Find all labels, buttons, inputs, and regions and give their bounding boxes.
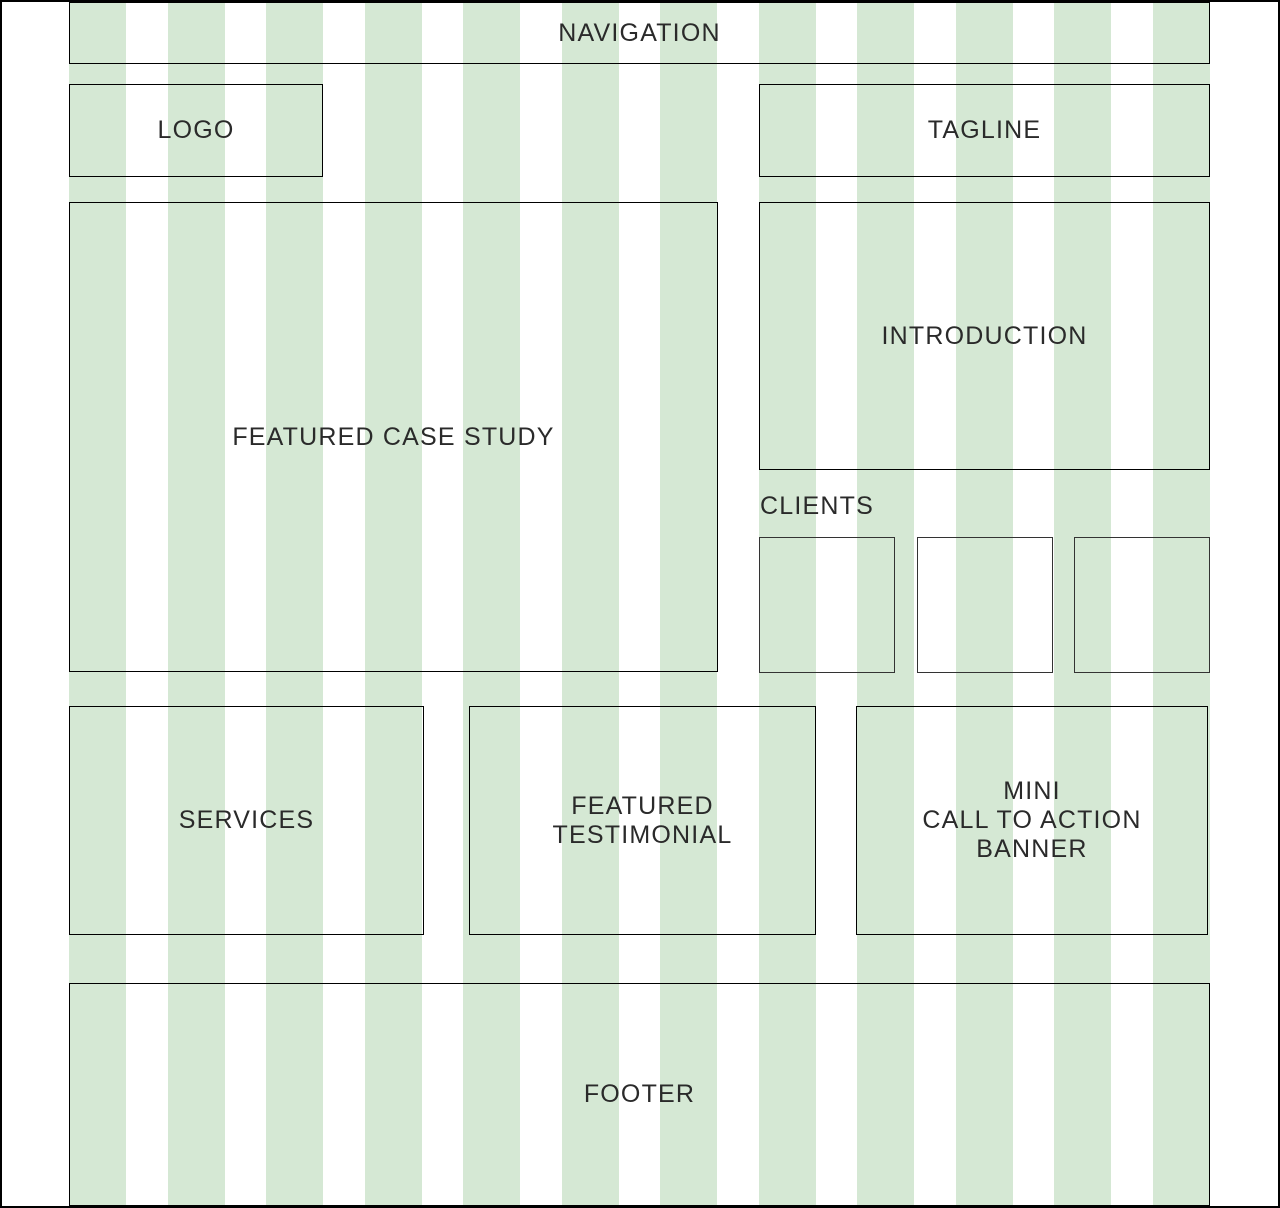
services-box: SERVICES bbox=[69, 706, 424, 935]
featured-case-study-label: FEATURED CASE STUDY bbox=[232, 423, 554, 452]
tagline-label: TAGLINE bbox=[928, 116, 1042, 145]
navigation-label: NAVIGATION bbox=[558, 19, 720, 48]
mini-cta-banner-label: MINI CALL TO ACTION BANNER bbox=[922, 777, 1141, 864]
client-placeholder-box bbox=[759, 537, 895, 673]
client-placeholder-box bbox=[917, 537, 1053, 673]
services-label: SERVICES bbox=[179, 806, 315, 835]
footer-label: FOOTER bbox=[584, 1080, 695, 1109]
logo-label: LOGO bbox=[157, 116, 234, 145]
footer-box: FOOTER bbox=[69, 983, 1210, 1206]
mini-cta-banner-box: MINI CALL TO ACTION BANNER bbox=[856, 706, 1208, 935]
featured-testimonial-box: FEATURED TESTIMONIAL bbox=[469, 706, 816, 935]
introduction-box: INTRODUCTION bbox=[759, 202, 1210, 470]
wireframe-page: NAVIGATION LOGO TAGLINE FEATURED CASE ST… bbox=[0, 0, 1280, 1208]
featured-testimonial-label: FEATURED TESTIMONIAL bbox=[553, 792, 733, 850]
navigation-box: NAVIGATION bbox=[69, 2, 1210, 64]
introduction-label: INTRODUCTION bbox=[881, 322, 1087, 351]
featured-case-study-box: FEATURED CASE STUDY bbox=[69, 202, 718, 672]
tagline-box: TAGLINE bbox=[759, 84, 1210, 177]
clients-row bbox=[759, 537, 1210, 673]
client-placeholder-box bbox=[1074, 537, 1210, 673]
logo-box: LOGO bbox=[69, 84, 323, 177]
clients-heading: CLIENTS bbox=[760, 492, 874, 521]
